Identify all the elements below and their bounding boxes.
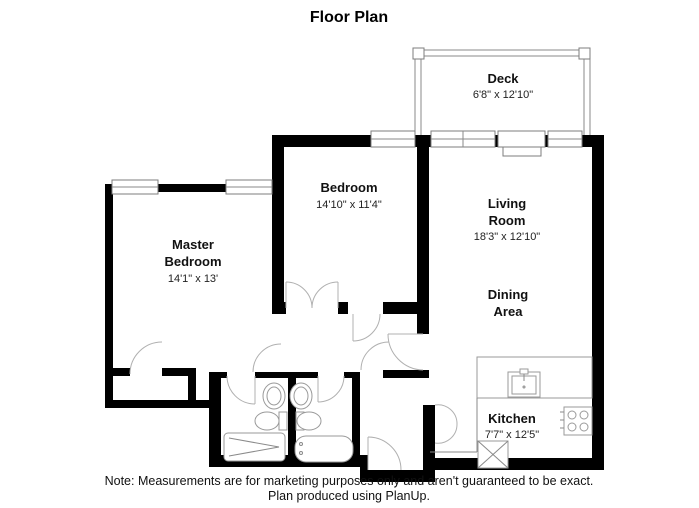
wall-bath-top-2: [255, 372, 288, 378]
bedroom-label: Bedroom 14'10" x 11'4": [316, 180, 382, 211]
wall-closet-stub: [188, 368, 196, 408]
wall-bath-divider: [288, 372, 296, 455]
bath2-toilet-bowl: [297, 412, 321, 430]
floor-plan-drawing: Floor Plan Deck 6'8" x 12'10" Bedroom 14…: [0, 0, 699, 508]
bath2-sink-basin: [294, 387, 308, 405]
master-window-2: [226, 180, 272, 194]
bath1-sink-basin: [267, 387, 281, 405]
living-room-dims: 18'3" x 12'10": [474, 231, 541, 243]
kitchen-label: Kitchen 7'7" x 12'5": [485, 411, 539, 441]
living-room-door: [388, 334, 423, 370]
bedroom-name: Bedroom: [320, 180, 377, 195]
kitchen-dims: 7'7" x 12'5": [485, 429, 539, 441]
kitchen-name: Kitchen: [488, 411, 536, 426]
bedroom-dims: 14'10" x 11'4": [316, 199, 382, 211]
hallway-door: [353, 314, 380, 341]
deck-post: [579, 48, 590, 59]
dining-area-name-1: Dining: [488, 287, 528, 302]
master-window-1: [112, 180, 158, 194]
bedroom-window: [371, 131, 415, 147]
wall-living-divider: [417, 147, 429, 334]
wall-bottom-right: [423, 458, 604, 470]
kitchen-stove: [560, 407, 592, 435]
wall-bath-top-1: [221, 372, 227, 378]
footer-note: Note: Measurements are for marketing pur…: [105, 474, 594, 503]
dining-area-name-2: Area: [494, 304, 524, 319]
master-bedroom-door: [130, 342, 162, 374]
wall-entry-closet: [423, 405, 435, 443]
master-bedroom-label: Master Bedroom 14'1" x 13': [164, 237, 221, 285]
wall-bedroom-bottom-2: [338, 302, 348, 314]
wall-hall-right: [383, 370, 429, 378]
wall-right: [592, 135, 604, 470]
wall-bath-left: [209, 372, 221, 467]
note-line-2: Plan produced using PlanUp.: [268, 489, 430, 503]
bath1-tub: [224, 433, 285, 461]
entry-closet-doors: [435, 405, 457, 443]
wall-master-bottom: [105, 400, 221, 408]
bath2-tub: [295, 436, 353, 462]
hall-inner-door-1: [361, 342, 389, 370]
kitchen-sink: [508, 369, 540, 397]
floor-plan-image: Floor Plan Deck 6'8" x 12'10" Bedroom 14…: [0, 0, 699, 508]
wall-hall-a: [113, 368, 130, 376]
deck-dims: 6'8" x 12'10": [473, 89, 533, 101]
entry-door: [368, 437, 401, 470]
wall-bedroom-bottom-1: [272, 302, 286, 314]
living-window: [548, 131, 582, 147]
deck-post: [413, 48, 424, 59]
living-slider-window: [498, 131, 545, 156]
wall-bath-top-3: [296, 372, 318, 378]
deck-label: Deck 6'8" x 12'10": [473, 71, 533, 101]
living-room-name-1: Living: [488, 196, 526, 211]
living-room-name-2: Room: [489, 213, 526, 228]
master-bedroom-dims: 14'1" x 13': [168, 273, 218, 285]
bathroom1-door: [227, 376, 255, 404]
bathroom2-door: [318, 376, 344, 402]
page-title: Floor Plan: [310, 9, 388, 26]
bathroom2-fixtures: [290, 383, 353, 462]
kitchen-appliance-box: [478, 441, 508, 468]
wall-bedroom-left: [272, 135, 284, 314]
note-line-1: Note: Measurements are for marketing pur…: [105, 474, 594, 488]
dining-area-label: Dining Area: [488, 287, 528, 319]
bedroom-french-doors: [286, 282, 338, 308]
hall-inner-door-2: [253, 344, 281, 372]
living-room-label: Living Room 18'3" x 12'10": [474, 196, 541, 243]
living-slider-door: [431, 131, 495, 147]
master-bedroom-name-1: Master: [172, 237, 214, 252]
wall-bath-top-4: [344, 372, 352, 378]
bath1-toilet-bowl: [255, 412, 279, 430]
wall-master-left: [105, 184, 113, 408]
deck-name: Deck: [487, 71, 519, 86]
master-bedroom-name-2: Bedroom: [164, 254, 221, 269]
bath1-toilet-tank: [279, 412, 287, 430]
